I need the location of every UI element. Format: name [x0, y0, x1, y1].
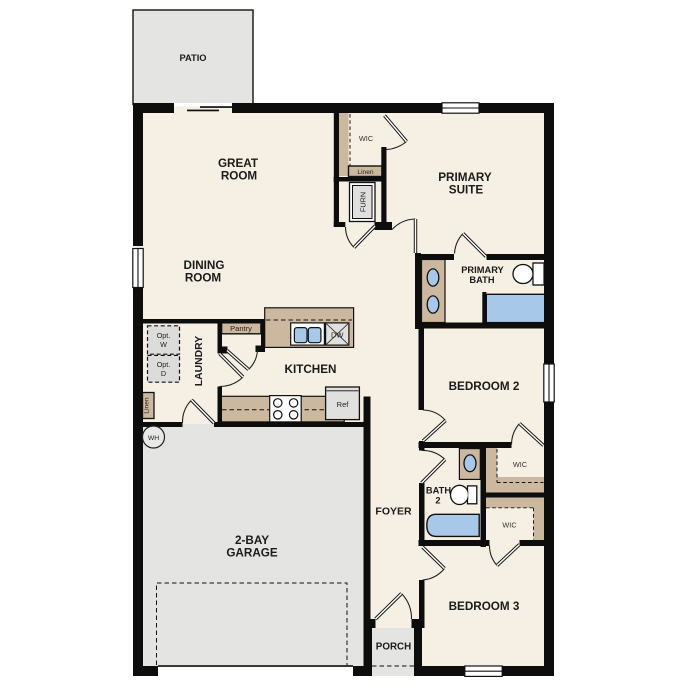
- svg-text:GREAT: GREAT: [218, 157, 259, 170]
- svg-text:W: W: [160, 340, 167, 349]
- svg-text:BEDROOM 3: BEDROOM 3: [449, 600, 520, 613]
- svg-text:FOYER: FOYER: [375, 506, 412, 518]
- svg-text:WIC: WIC: [513, 460, 527, 469]
- svg-text:PRIMARY: PRIMARY: [461, 265, 504, 275]
- svg-text:BEDROOM 2: BEDROOM 2: [449, 380, 520, 393]
- svg-text:Opt.: Opt.: [157, 331, 171, 340]
- svg-text:2-BAY: 2-BAY: [235, 534, 269, 547]
- svg-text:LAUNDRY: LAUNDRY: [194, 336, 205, 386]
- svg-text:ROOM: ROOM: [221, 170, 257, 183]
- svg-text:2: 2: [435, 496, 440, 506]
- svg-text:KITCHEN: KITCHEN: [285, 363, 337, 376]
- svg-text:Ref: Ref: [337, 400, 350, 409]
- svg-text:Linen: Linen: [357, 169, 373, 176]
- svg-text:Pantry: Pantry: [230, 324, 252, 333]
- svg-text:Linen: Linen: [144, 397, 151, 413]
- svg-text:DINING: DINING: [184, 259, 225, 272]
- svg-text:PATIO: PATIO: [179, 53, 206, 63]
- svg-text:GARAGE: GARAGE: [226, 547, 278, 560]
- svg-text:PRIMARY: PRIMARY: [438, 171, 492, 184]
- svg-text:D: D: [161, 369, 166, 378]
- svg-text:WH: WH: [148, 435, 159, 442]
- svg-text:BATH: BATH: [469, 275, 494, 285]
- svg-text:BATH: BATH: [426, 486, 451, 496]
- svg-text:DW: DW: [331, 331, 344, 340]
- svg-text:WIC: WIC: [359, 134, 373, 143]
- svg-text:ROOM: ROOM: [185, 272, 221, 285]
- svg-text:WIC: WIC: [502, 521, 516, 530]
- svg-text:PORCH: PORCH: [376, 642, 411, 653]
- svg-text:SUITE: SUITE: [449, 184, 484, 197]
- svg-text:FURN: FURN: [359, 192, 368, 212]
- svg-text:Opt.: Opt.: [157, 360, 171, 369]
